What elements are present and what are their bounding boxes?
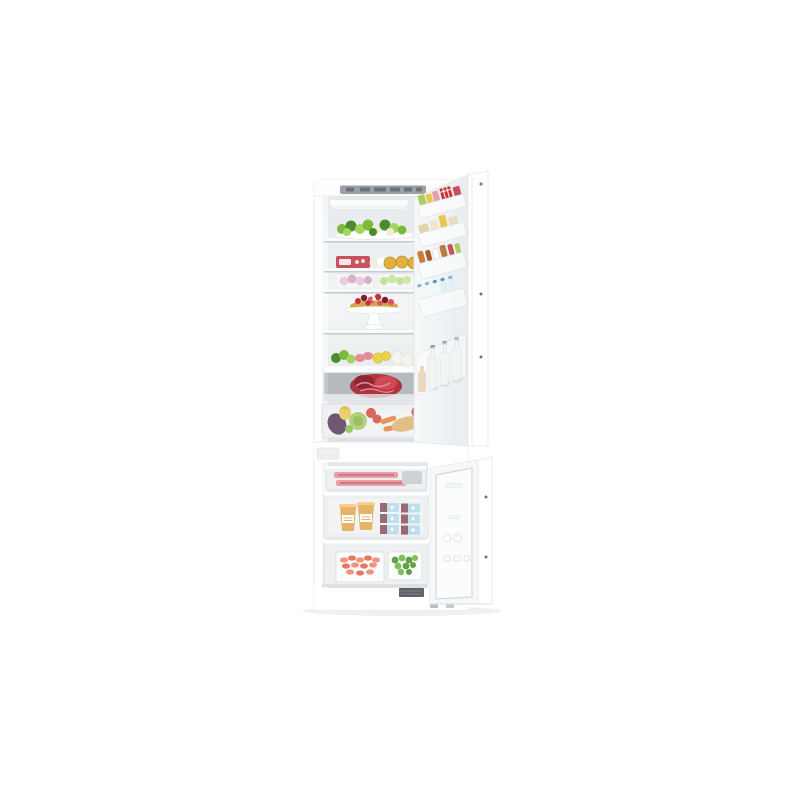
led-light bbox=[330, 200, 408, 209]
door-hinge-dot bbox=[480, 356, 483, 359]
door-hinge-dot bbox=[480, 293, 483, 296]
control-panel bbox=[340, 186, 426, 195]
freezer-door bbox=[430, 457, 492, 604]
mid-divider bbox=[314, 442, 468, 462]
fridge-product-photo bbox=[0, 0, 800, 800]
product-image-canvas bbox=[0, 0, 800, 800]
fridge-door bbox=[414, 171, 488, 446]
door-hinge-dot bbox=[485, 496, 488, 499]
frozen-greens-container bbox=[388, 552, 422, 580]
crisper-drawer bbox=[322, 404, 428, 438]
base-grille bbox=[399, 588, 424, 597]
freezer-middle-drawer bbox=[324, 492, 428, 538]
door-hinge-dot bbox=[480, 183, 483, 186]
freezer-door-edge bbox=[478, 457, 492, 604]
door-hinge-dot bbox=[485, 556, 488, 559]
meat-drawer bbox=[324, 369, 428, 400]
freezer-top-drawer bbox=[326, 466, 426, 490]
shrimp-container bbox=[336, 552, 384, 582]
fridge-door-edge bbox=[468, 171, 488, 446]
freezer-bottom-drawer bbox=[324, 540, 428, 586]
